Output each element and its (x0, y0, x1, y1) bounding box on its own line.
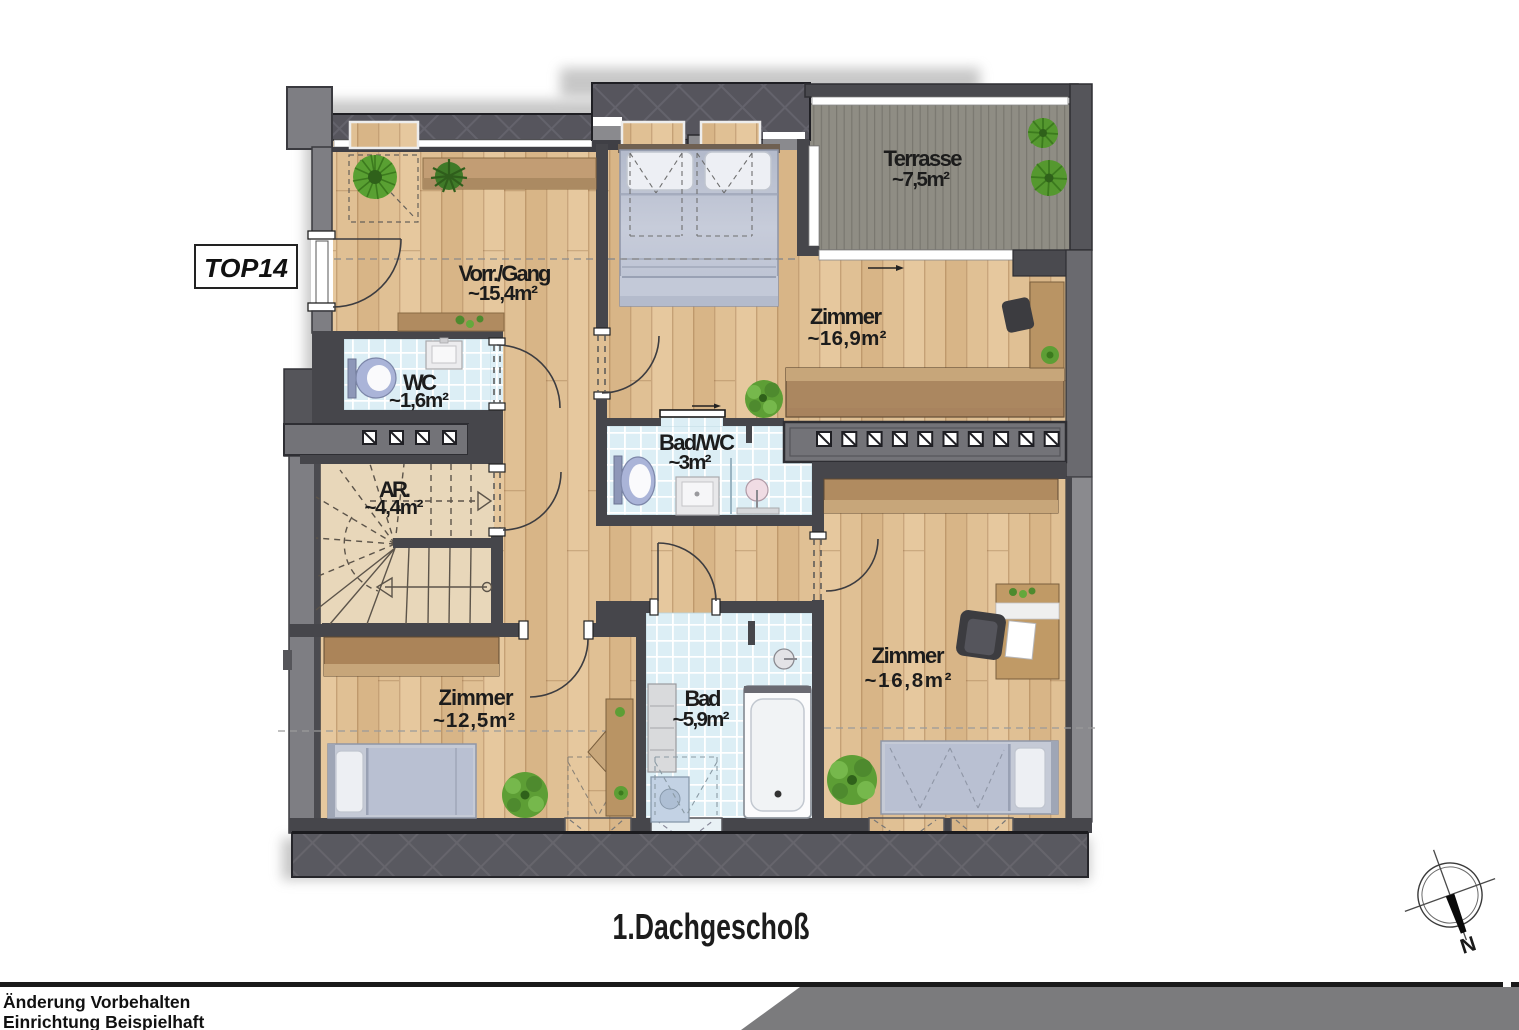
svg-text:Zimmer: Zimmer (810, 304, 882, 329)
svg-text:~1,6m²: ~1,6m² (389, 389, 449, 412)
svg-text:~15,4m²: ~15,4m² (468, 282, 538, 305)
svg-text:~3m²: ~3m² (669, 451, 712, 474)
svg-text:~16,9m²: ~16,9m² (808, 327, 887, 350)
svg-text:~7,5m²: ~7,5m² (892, 168, 950, 191)
svg-text:~16,8m²: ~16,8m² (865, 669, 952, 692)
svg-text:TOP14: TOP14 (204, 253, 289, 283)
svg-text:Zimmer: Zimmer (439, 685, 514, 710)
svg-text:Änderung Vorbehalten: Änderung Vorbehalten (3, 992, 190, 1012)
svg-text:Zimmer: Zimmer (872, 643, 945, 668)
svg-text:N: N (1457, 932, 1479, 959)
svg-text:~12,5m²: ~12,5m² (433, 709, 515, 732)
svg-text:1.Dachgeschoß: 1.Dachgeschoß (613, 906, 810, 947)
svg-text:~4,4m²: ~4,4m² (365, 496, 424, 519)
svg-text:~5,9m²: ~5,9m² (673, 708, 730, 731)
svg-text:Einrichtung Beispielhaft: Einrichtung Beispielhaft (3, 1012, 204, 1030)
